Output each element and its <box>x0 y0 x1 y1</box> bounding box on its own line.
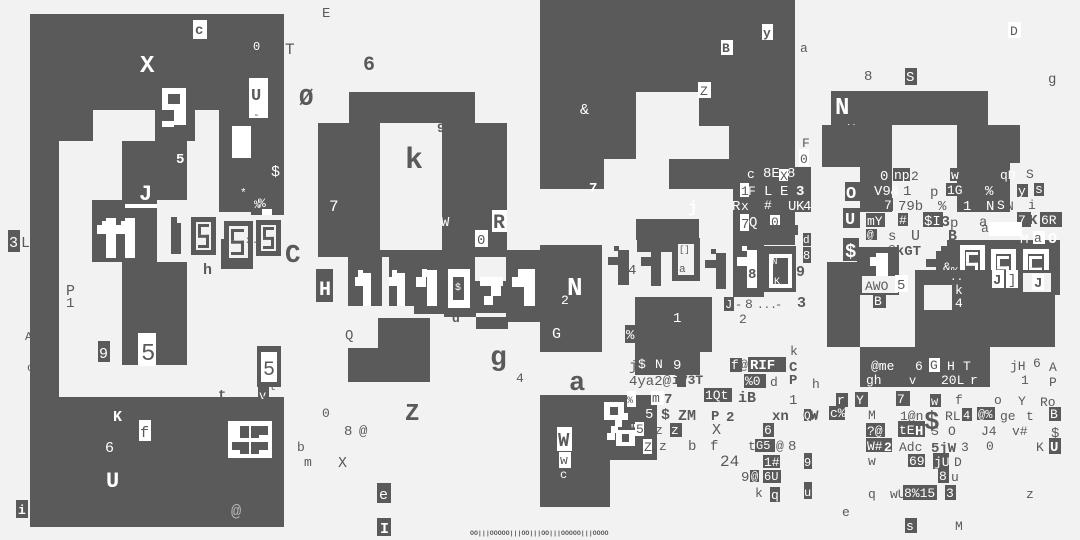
svg-text:J: J <box>1034 276 1042 292</box>
svg-text:ge: ge <box>1000 409 1016 424</box>
svg-text:@: @ <box>751 470 758 484</box>
svg-text:z: z <box>1026 487 1034 502</box>
svg-text:D: D <box>1010 24 1018 39</box>
svg-text:h: h <box>812 377 820 392</box>
svg-text:c%: c% <box>830 406 846 421</box>
svg-text:M: M <box>1020 232 1028 248</box>
svg-text:G: G <box>552 326 561 343</box>
svg-text:E: E <box>780 184 788 200</box>
svg-text:s: s <box>888 229 896 245</box>
svg-text:@: @ <box>776 439 784 454</box>
svg-text:$: $ <box>455 282 461 294</box>
svg-text:*: * <box>240 188 247 200</box>
svg-text:z: z <box>655 423 663 438</box>
svg-text:s: s <box>1035 182 1043 197</box>
svg-text:@: @ <box>231 503 241 522</box>
svg-text:H: H <box>947 359 955 374</box>
svg-text:y: y <box>763 26 771 41</box>
svg-text:9: 9 <box>99 346 108 363</box>
svg-text:$I: $I <box>924 214 941 230</box>
svg-text:1Qt: 1Qt <box>705 388 728 403</box>
svg-text:J: J <box>993 273 1001 289</box>
svg-text:e: e <box>842 505 850 520</box>
svg-text:6: 6 <box>105 440 114 457</box>
svg-text:d: d <box>803 235 810 247</box>
svg-text:K: K <box>113 409 122 426</box>
svg-text:I: I <box>380 521 389 538</box>
svg-text:k: k <box>405 144 423 178</box>
svg-text:S: S <box>931 424 939 439</box>
svg-text:69: 69 <box>909 454 925 469</box>
svg-text:r: r <box>914 297 922 313</box>
svg-text:8: 8 <box>787 166 795 182</box>
svg-text:C: C <box>285 240 301 270</box>
svg-text:6: 6 <box>363 54 375 77</box>
svg-text:B: B <box>722 41 730 56</box>
svg-text:RIF: RIF <box>750 358 775 374</box>
svg-text:U: U <box>911 228 920 245</box>
svg-text:@: @ <box>359 424 368 440</box>
svg-text:M: M <box>955 519 963 534</box>
svg-text:3: 3 <box>946 486 954 501</box>
svg-text:w: w <box>951 168 959 183</box>
svg-text:B: B <box>874 294 882 309</box>
svg-text:N: N <box>986 199 994 215</box>
svg-text:1G: 1G <box>947 183 963 198</box>
svg-text:S: S <box>906 70 914 86</box>
svg-text:S: S <box>1026 167 1034 182</box>
svg-text:-: - <box>253 110 260 122</box>
svg-text:jU: jU <box>934 455 950 470</box>
svg-text:4: 4 <box>963 409 970 423</box>
svg-text:m: m <box>304 455 312 470</box>
svg-text:RL: RL <box>945 409 961 424</box>
svg-text:9: 9 <box>437 121 445 136</box>
svg-text:9: 9 <box>796 264 805 281</box>
svg-text:K: K <box>1036 440 1044 455</box>
svg-text:8%15: 8%15 <box>904 486 935 501</box>
svg-text:..: .. <box>950 272 963 284</box>
svg-text:k: k <box>790 344 798 359</box>
svg-text:5: 5 <box>645 407 653 423</box>
svg-text:9: 9 <box>804 456 811 470</box>
svg-text:7: 7 <box>897 392 905 407</box>
svg-text:2: 2 <box>561 293 569 308</box>
svg-text:@%: @% <box>978 408 993 422</box>
svg-text:1: 1 <box>673 311 681 327</box>
svg-text:3: 3 <box>961 440 969 455</box>
svg-text:f: f <box>710 439 718 455</box>
svg-text:": " <box>630 424 637 436</box>
svg-text:2: 2 <box>726 410 734 426</box>
svg-text:8: 8 <box>745 297 753 312</box>
svg-text:t: t <box>270 383 276 394</box>
svg-text:o: o <box>994 393 1002 408</box>
svg-text:w: w <box>560 453 568 468</box>
svg-text:X: X <box>712 422 721 439</box>
svg-text:g: g <box>1048 72 1056 88</box>
svg-text:1#: 1# <box>764 455 780 470</box>
svg-text:%: % <box>985 184 994 200</box>
svg-text:O: O <box>948 424 956 439</box>
svg-text:T: T <box>285 41 295 59</box>
svg-text:V: V <box>978 372 986 387</box>
svg-text:#: # <box>899 213 907 228</box>
svg-text:o: o <box>27 361 34 375</box>
svg-text:N: N <box>567 273 583 303</box>
svg-text:tE: tE <box>899 423 915 438</box>
svg-text:AWO: AWO <box>865 279 889 294</box>
svg-text:N: N <box>835 95 849 122</box>
svg-text:U: U <box>106 469 119 494</box>
svg-text:i: i <box>1028 198 1036 213</box>
svg-text:4ya2@: 4ya2@ <box>629 374 672 390</box>
svg-text:4: 4 <box>803 199 811 215</box>
svg-text:R: R <box>493 212 505 235</box>
svg-text:7: 7 <box>589 181 597 197</box>
svg-text:jH: jH <box>1010 359 1026 374</box>
svg-text:np: np <box>894 168 910 183</box>
svg-text:E: E <box>322 6 330 22</box>
svg-text:A: A <box>1049 360 1057 375</box>
svg-text:t: t <box>748 439 756 454</box>
svg-text:a: a <box>569 369 585 399</box>
svg-text:%0: %0 <box>745 374 761 389</box>
svg-text:w: w <box>868 454 876 469</box>
svg-text:1: 1 <box>66 296 74 312</box>
svg-text:u: u <box>804 486 811 500</box>
svg-text:Y: Y <box>856 393 864 408</box>
svg-text:x.: x. <box>246 236 258 247</box>
svg-text:@: @ <box>740 358 748 373</box>
svg-text:a: a <box>800 41 808 56</box>
svg-text:G: G <box>930 358 938 373</box>
svg-text:0: 0 <box>880 169 888 185</box>
svg-text:A: A <box>25 330 33 344</box>
svg-text:mY: mY <box>867 214 883 229</box>
svg-text:&: & <box>580 102 589 119</box>
svg-text:Z: Z <box>644 440 652 455</box>
svg-text:-: - <box>775 298 782 312</box>
svg-text:ZM: ZM <box>678 408 696 425</box>
svg-text:$: $ <box>845 241 856 263</box>
svg-text:b: b <box>688 439 696 455</box>
svg-text:6: 6 <box>1033 356 1041 371</box>
svg-text:R: R <box>732 199 741 215</box>
svg-text:9: 9 <box>673 358 681 374</box>
svg-text:Z: Z <box>700 84 708 99</box>
svg-text:8E: 8E <box>763 166 780 182</box>
svg-text:6U: 6U <box>764 470 778 484</box>
svg-text:f: f <box>731 358 739 373</box>
svg-text:c: c <box>560 468 567 482</box>
svg-text:S: S <box>997 198 1005 213</box>
svg-text:X: X <box>338 455 347 472</box>
svg-text:iB: iB <box>738 390 756 407</box>
svg-text:c: c <box>195 23 203 39</box>
svg-text:z: z <box>659 439 667 454</box>
svg-text:8: 8 <box>939 469 947 484</box>
svg-text:8: 8 <box>788 439 796 455</box>
svg-text:OO|||OOOOO|||OO|||OO|||OOOOO||: OO|||OOOOO|||OO|||OO|||OOOOO|||OOOO <box>470 530 609 537</box>
svg-text:qD: qD <box>1000 168 1016 183</box>
svg-text:F: F <box>802 136 810 151</box>
svg-text:F: F <box>748 184 756 199</box>
svg-text:B: B <box>1050 407 1058 422</box>
svg-text:#: # <box>764 198 772 213</box>
svg-text:T: T <box>963 359 971 374</box>
svg-text:P: P <box>1049 375 1057 390</box>
svg-text:]: ] <box>1008 273 1016 289</box>
svg-text:H: H <box>915 424 923 440</box>
svg-text:W: W <box>441 215 450 231</box>
svg-text:r: r <box>970 373 978 388</box>
svg-text:@: @ <box>867 230 874 242</box>
svg-text:5: 5 <box>636 422 644 437</box>
svg-text:U: U <box>845 211 855 230</box>
svg-text:d: d <box>770 375 778 390</box>
svg-text:D: D <box>954 455 962 470</box>
svg-text:Ø: Ø <box>299 86 313 113</box>
svg-text:J4: J4 <box>981 424 997 439</box>
svg-text:g: g <box>490 343 507 374</box>
svg-text:-: - <box>735 298 742 312</box>
svg-text:7: 7 <box>329 198 339 216</box>
svg-text:f: f <box>140 425 149 442</box>
svg-text:2: 2 <box>911 169 919 184</box>
svg-text:Y: Y <box>1018 394 1026 409</box>
svg-text:K: K <box>774 277 780 288</box>
svg-text:v: v <box>909 374 916 388</box>
svg-text:Q: Q <box>749 215 757 231</box>
svg-text:7: 7 <box>664 392 672 408</box>
svg-text:4: 4 <box>516 371 524 386</box>
svg-text:4: 4 <box>955 296 963 311</box>
svg-text:$: $ <box>271 164 280 181</box>
svg-text:e: e <box>646 358 654 373</box>
svg-text:c: c <box>747 167 755 182</box>
svg-text:$: $ <box>661 407 670 424</box>
svg-text:v#: v# <box>1012 424 1028 439</box>
svg-text:...: ... <box>757 300 777 312</box>
svg-text:x: x <box>741 199 749 214</box>
svg-text:k: k <box>755 486 763 501</box>
svg-text:1: 1 <box>963 199 971 215</box>
svg-text:9: 9 <box>741 470 749 486</box>
svg-text:s: s <box>906 519 914 534</box>
svg-text:1: 1 <box>789 393 797 409</box>
svg-text:5: 5 <box>141 341 155 368</box>
svg-text:J: J <box>139 182 152 207</box>
svg-text:a: a <box>1034 231 1042 246</box>
svg-text:iV3T: iV3T <box>672 373 703 388</box>
svg-text:0: 0 <box>477 233 485 249</box>
svg-text:t: t <box>1026 409 1034 424</box>
svg-text:Adc: Adc <box>899 440 922 455</box>
svg-text:7: 7 <box>884 198 892 213</box>
svg-text:h: h <box>203 262 212 279</box>
svg-text:xn: xn <box>772 409 789 425</box>
svg-text:U: U <box>1050 440 1058 456</box>
svg-text:8: 8 <box>803 249 810 263</box>
svg-text:2: 2 <box>739 312 747 327</box>
svg-text:j: j <box>688 199 698 217</box>
svg-text:W#: W# <box>867 439 883 454</box>
svg-text:y: y <box>1018 184 1026 199</box>
svg-text:u: u <box>951 470 959 485</box>
svg-text:W: W <box>810 409 818 424</box>
svg-text:a: a <box>981 221 989 236</box>
svg-text:%: % <box>258 196 266 211</box>
svg-text:f: f <box>955 393 963 408</box>
svg-text:N: N <box>1006 199 1014 214</box>
svg-text:m: m <box>652 391 660 406</box>
svg-text:O: O <box>846 185 856 204</box>
svg-text:1: 1 <box>1021 373 1029 388</box>
svg-text:N: N <box>772 257 777 267</box>
svg-text:L: L <box>21 235 30 252</box>
svg-text:?@: ?@ <box>867 424 883 439</box>
svg-text:6: 6 <box>764 423 772 438</box>
svg-text:24: 24 <box>720 453 739 471</box>
svg-text:j: j <box>629 359 637 375</box>
svg-text:8: 8 <box>864 69 872 85</box>
svg-text:v: v <box>261 390 268 404</box>
svg-text:0: 0 <box>253 40 260 54</box>
svg-text:G5: G5 <box>756 439 770 453</box>
svg-text:t: t <box>218 388 226 404</box>
svg-text:a: a <box>679 264 686 276</box>
svg-text:5: 5 <box>176 152 184 168</box>
svg-text:d: d <box>452 311 460 326</box>
svg-text:1: 1 <box>903 184 911 200</box>
svg-text:P: P <box>789 373 797 389</box>
svg-text:20L: 20L <box>941 373 964 388</box>
svg-text:H: H <box>319 279 331 302</box>
svg-text:e: e <box>379 487 388 504</box>
svg-text:W: W <box>558 430 570 452</box>
svg-text:6: 6 <box>915 359 923 374</box>
svg-text:0: 0 <box>322 406 330 421</box>
svg-text:%: % <box>627 396 633 407</box>
svg-text:%: % <box>626 328 635 344</box>
svg-text:i: i <box>18 503 26 518</box>
svg-text:Q: Q <box>345 328 353 344</box>
svg-text:0: 0 <box>800 152 808 167</box>
svg-text:8: 8 <box>748 267 756 283</box>
svg-text:N: N <box>655 357 663 372</box>
svg-text:U: U <box>251 87 261 106</box>
svg-text:[]: [] <box>679 245 690 255</box>
svg-text:5: 5 <box>897 278 905 294</box>
svg-text:3: 3 <box>796 184 804 200</box>
svg-text:3: 3 <box>9 235 18 252</box>
svg-text:gh: gh <box>866 373 882 388</box>
svg-text:b: b <box>297 440 305 455</box>
svg-text:Z: Z <box>405 401 419 428</box>
svg-text:z: z <box>671 423 679 438</box>
svg-text:@me: @me <box>871 359 894 374</box>
svg-text:8: 8 <box>344 424 352 440</box>
svg-text:K: K <box>1029 213 1038 229</box>
svg-text:5: 5 <box>263 359 275 382</box>
svg-text:M: M <box>868 408 876 423</box>
svg-text:J: J <box>725 298 732 312</box>
svg-text:q: q <box>868 487 876 502</box>
svg-text:X: X <box>140 53 155 80</box>
svg-text:0: 0 <box>986 439 994 454</box>
svg-text:2: 2 <box>884 440 892 455</box>
svg-text:4: 4 <box>628 263 636 279</box>
svg-text:O: O <box>1048 231 1057 248</box>
svg-text:6R: 6R <box>1041 213 1057 228</box>
svg-text:$: $ <box>638 357 646 372</box>
svg-text:q: q <box>771 488 779 503</box>
svg-text:3: 3 <box>797 295 806 312</box>
